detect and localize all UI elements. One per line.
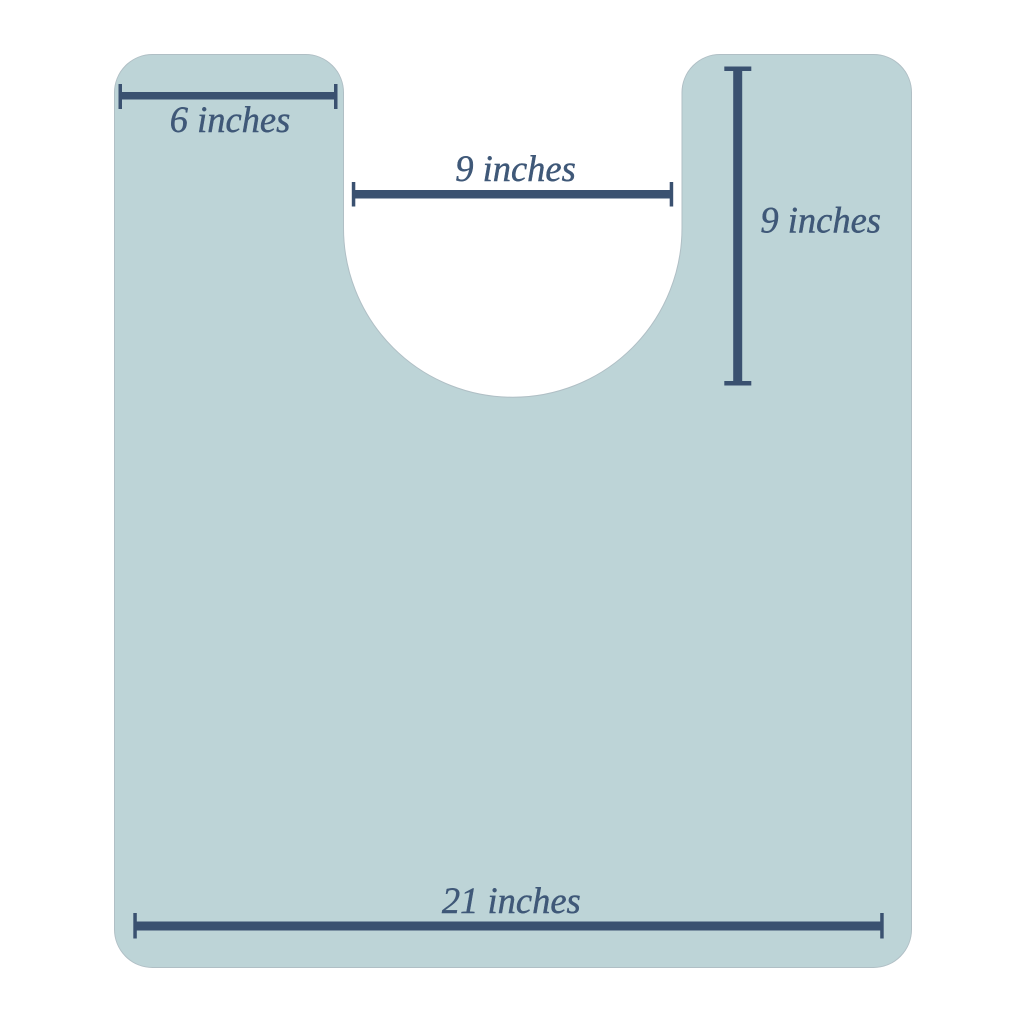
svg-text:9 inches: 9 inches: [455, 148, 576, 189]
svg-text:21 inches: 21 inches: [442, 880, 581, 921]
svg-text:6 inches: 6 inches: [170, 99, 291, 140]
svg-text:9 inches: 9 inches: [760, 200, 881, 241]
